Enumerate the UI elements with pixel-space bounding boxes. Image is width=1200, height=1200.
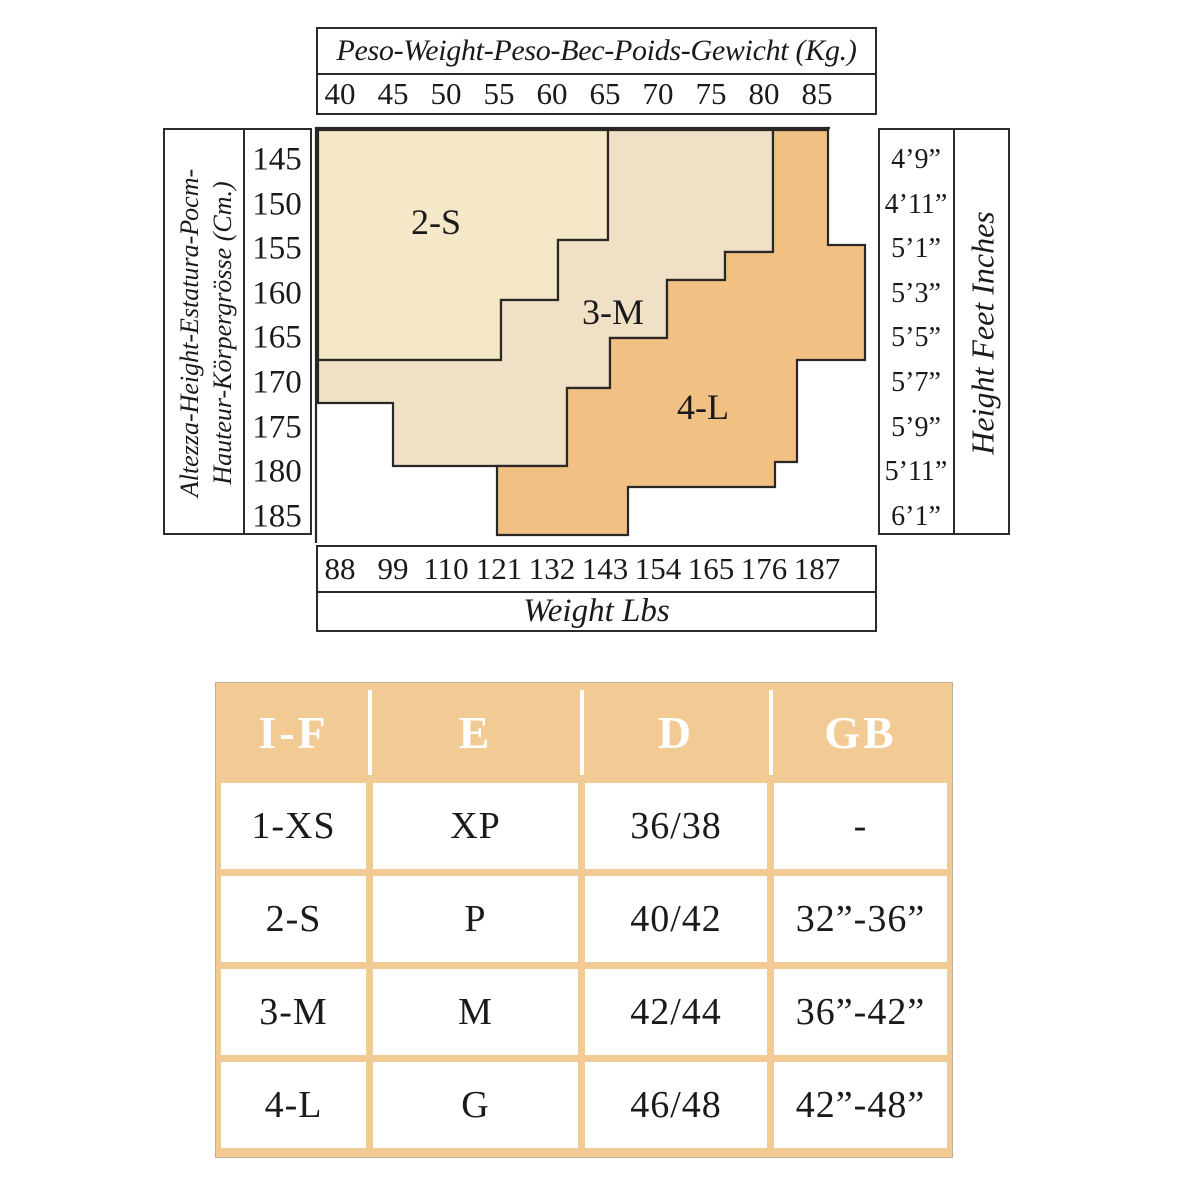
weight-kg-ticks: 40455055606570758085 (318, 75, 875, 113)
table-row-label: 4-L (221, 1062, 366, 1148)
table-header-gb: GB (774, 706, 947, 759)
table-cell: 46/48 (585, 1062, 767, 1148)
ft-tick: 5’3” (891, 278, 941, 310)
height-ft-axis-box: Height Feet Inches 4’9”4’11”5’1”5’3”5’5”… (878, 128, 1010, 535)
height-ft-axis-divider (953, 130, 955, 533)
height-ft-axis-title: Height Feet Inches (965, 211, 1002, 454)
kg-tick: 65 (590, 76, 621, 112)
table-cell: 32”-36” (774, 876, 947, 962)
ft-tick: 4’9” (891, 144, 941, 176)
table-cell: 36/38 (585, 783, 767, 869)
table-body: 1-XSXP36/38-2-SP40/4232”-36”3-MM42/4436”… (221, 783, 947, 1148)
kg-tick: 80 (749, 76, 780, 112)
table-header-row: I-F E D GB (221, 683, 947, 781)
height-cm-axis-title: Altezza-Height-Estatura-Рост- Hauteur-Kö… (173, 169, 239, 497)
ft-tick: 5’11” (885, 456, 948, 488)
table-header-divider (769, 690, 773, 775)
ft-tick: 5’5” (891, 322, 941, 354)
kg-tick: 50 (431, 76, 462, 112)
table-row-label: 2-S (221, 876, 366, 962)
cm-tick: 145 (252, 142, 302, 179)
lbs-tick: 154 (635, 551, 682, 587)
table-row-label: 1-XS (221, 783, 366, 869)
height-cm-axis-divider (243, 130, 245, 533)
table-cell: P (373, 876, 578, 962)
kg-tick: 70 (643, 76, 674, 112)
kg-tick: 60 (537, 76, 568, 112)
lbs-tick: 165 (688, 551, 735, 587)
ft-tick: 5’1” (891, 233, 941, 265)
table-cell: 36”-42” (774, 969, 947, 1055)
cm-tick: 155 (252, 231, 302, 268)
table-cell: G (373, 1062, 578, 1148)
size-conversion-table: I-F E D GB 1-XSXP36/38-2-SP40/4232”-36”3… (215, 682, 953, 1158)
ft-tick: 5’9” (891, 412, 941, 444)
cm-tick: 185 (252, 498, 302, 535)
table-header-if: I-F (221, 706, 366, 759)
table-cell: 40/42 (585, 876, 767, 962)
table-header-divider (580, 690, 584, 775)
lbs-tick: 121 (476, 551, 523, 587)
table-cell: 42/44 (585, 969, 767, 1055)
weight-kg-axis-title: Peso-Weight-Peso-Bec-Poids-Gewicht (Kg.) (318, 29, 875, 75)
lbs-tick: 88 (325, 551, 356, 587)
region-label-2-S: 2-S (411, 201, 461, 243)
cm-tick: 175 (252, 409, 302, 446)
kg-tick: 40 (325, 76, 356, 112)
lbs-tick: 143 (582, 551, 629, 587)
region-label-4-L: 4-L (677, 386, 729, 428)
height-cm-axis-title-line2: Hauteur-Körpergrösse (Cm.) (206, 169, 239, 497)
cm-tick: 170 (252, 365, 302, 402)
region-label-3-M: 3-M (582, 291, 644, 333)
table-header-e: E (373, 706, 578, 759)
lbs-tick: 99 (378, 551, 409, 587)
ft-tick: 4’11” (885, 189, 948, 221)
cm-tick: 160 (252, 275, 302, 312)
height-cm-axis-title-line1: Altezza-Height-Estatura-Рост- (173, 169, 206, 497)
weight-lbs-ticks: 8899110121132143154165176187 (318, 547, 875, 591)
kg-tick: 55 (484, 76, 515, 112)
lbs-tick: 187 (794, 551, 841, 587)
table-header-divider (368, 690, 372, 775)
table-cell: XP (373, 783, 578, 869)
table-cell: 42”-48” (774, 1062, 947, 1148)
cm-tick: 165 (252, 320, 302, 357)
height-cm-axis-box: Altezza-Height-Estatura-Рост- Hauteur-Kö… (163, 128, 312, 535)
lbs-tick: 176 (741, 551, 788, 587)
table-cell: M (373, 969, 578, 1055)
ft-tick: 5’7” (891, 367, 941, 399)
table-cell: - (774, 783, 947, 869)
cm-tick: 150 (252, 186, 302, 223)
cm-tick: 180 (252, 454, 302, 491)
kg-tick: 75 (696, 76, 727, 112)
weight-lbs-axis-box: 8899110121132143154165176187 Weight Lbs (316, 545, 877, 632)
table-header-d: D (585, 706, 767, 759)
size-guide-page: 2-S 3-M 4-L Peso-Weight-Peso-Bec-Poids-G… (0, 0, 1200, 1200)
ft-tick: 6’1” (891, 501, 941, 533)
weight-lbs-axis-title: Weight Lbs (318, 591, 875, 630)
table-row-label: 3-M (221, 969, 366, 1055)
weight-kg-axis-box: Peso-Weight-Peso-Bec-Poids-Gewicht (Kg.)… (316, 27, 877, 115)
lbs-tick: 110 (423, 551, 468, 587)
kg-tick: 45 (378, 76, 409, 112)
kg-tick: 85 (802, 76, 833, 112)
lbs-tick: 132 (529, 551, 576, 587)
